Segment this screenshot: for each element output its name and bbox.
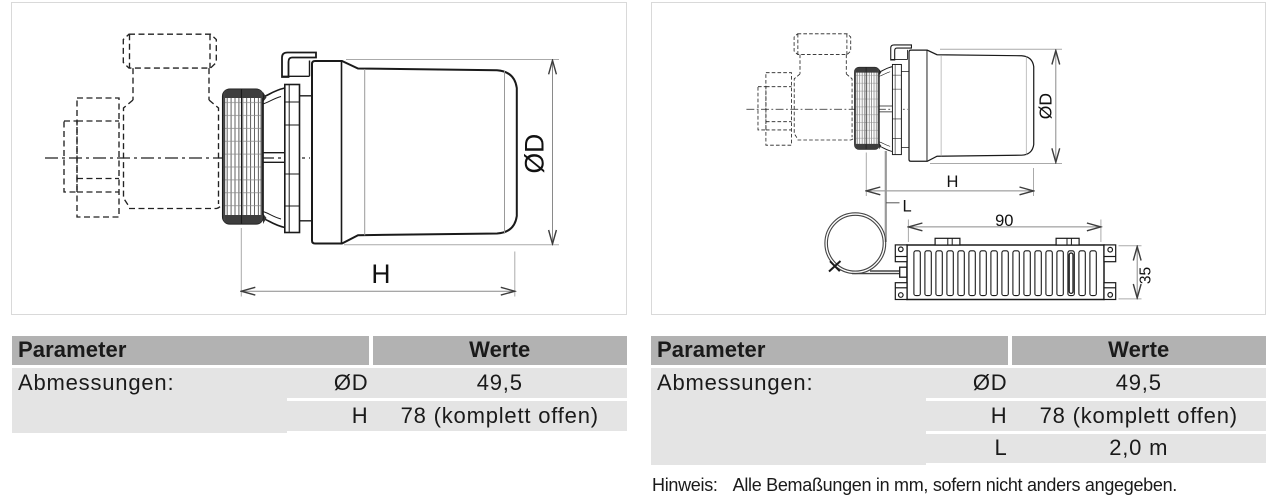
svg-text:90: 90 xyxy=(995,212,1013,230)
svg-text:L: L xyxy=(903,198,912,216)
svg-text:ØD: ØD xyxy=(1036,93,1056,119)
svg-text:H: H xyxy=(371,259,390,289)
svg-text:H: H xyxy=(947,173,959,191)
svg-text:ØD: ØD xyxy=(520,134,550,174)
svg-text:35: 35 xyxy=(1138,267,1155,284)
